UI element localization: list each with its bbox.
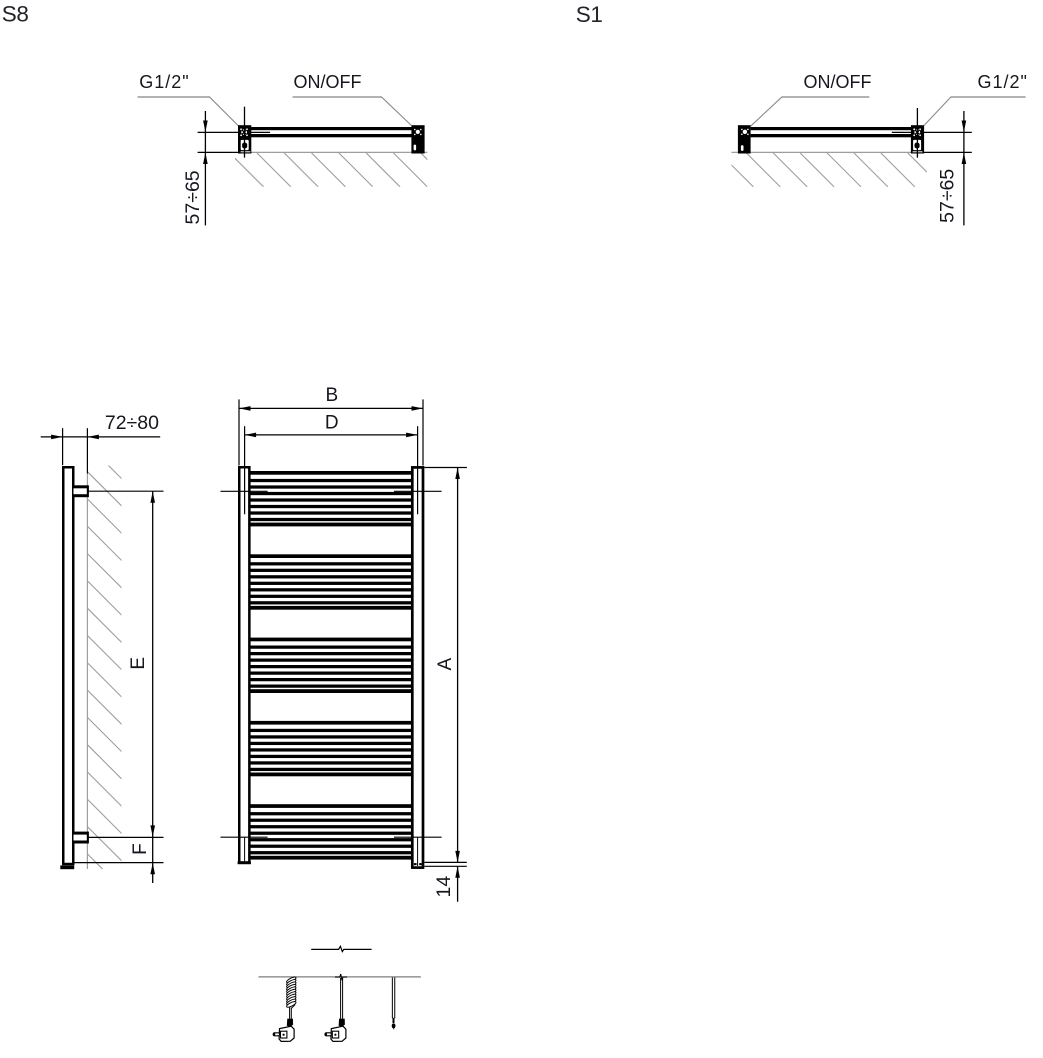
svg-text:ON/OFF: ON/OFF bbox=[294, 72, 362, 92]
svg-text:A: A bbox=[435, 658, 456, 671]
svg-text:14: 14 bbox=[433, 876, 455, 898]
svg-text:S1: S1 bbox=[576, 2, 603, 27]
svg-text:G1/2": G1/2" bbox=[139, 72, 189, 92]
svg-text:S8: S8 bbox=[2, 2, 29, 27]
svg-text:57÷65: 57÷65 bbox=[937, 169, 959, 223]
svg-text:F: F bbox=[130, 843, 151, 855]
svg-text:57÷65: 57÷65 bbox=[182, 170, 204, 224]
svg-text:B: B bbox=[325, 385, 338, 406]
svg-text:D: D bbox=[325, 412, 339, 433]
svg-text:72÷80: 72÷80 bbox=[105, 412, 159, 434]
svg-text:E: E bbox=[128, 657, 149, 670]
svg-text:G1/2": G1/2" bbox=[978, 72, 1028, 92]
svg-text:ON/OFF: ON/OFF bbox=[804, 72, 872, 92]
